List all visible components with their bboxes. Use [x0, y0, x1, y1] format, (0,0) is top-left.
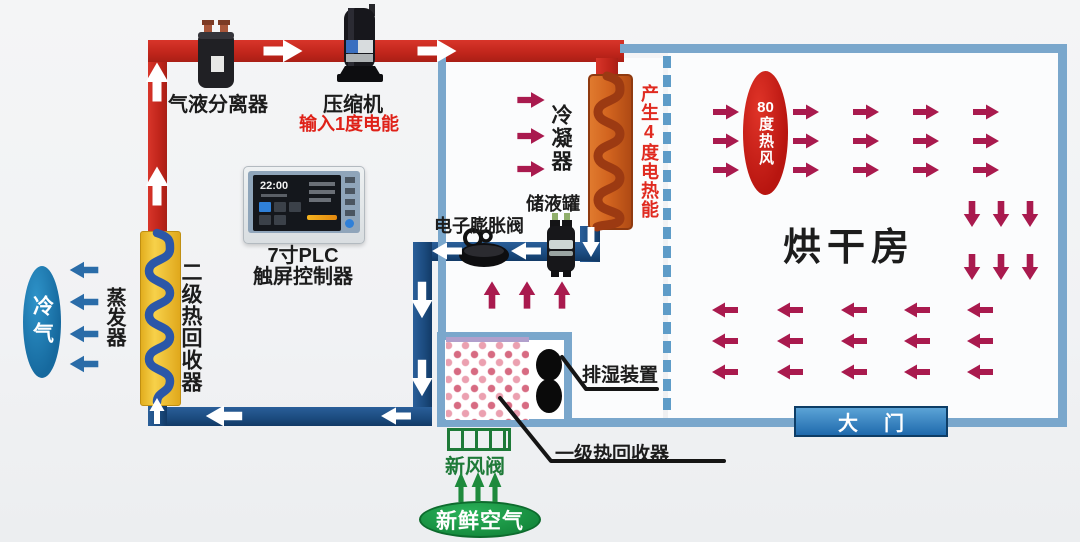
plc-side-icons — [345, 177, 355, 217]
plc-readout — [309, 182, 335, 186]
separator-label: 气液分离器 — [168, 88, 268, 117]
compressor-input-label: 输入1度电能 — [299, 110, 399, 136]
condenser-coil — [588, 74, 633, 230]
hot-air-bubble: 80 度热风 — [743, 71, 788, 195]
dehumidifier-unit — [534, 348, 564, 414]
condenser-label: 冷凝器 — [550, 104, 571, 173]
condenser-energy-label: 产生4度电热能 — [640, 84, 658, 219]
plc-clock-subtext — [261, 194, 287, 197]
primary-heat-recovery-panel — [446, 337, 529, 420]
fresh-air-label: 新鲜空气 — [436, 505, 524, 535]
receiver-label: 储液罐 — [526, 190, 580, 216]
plc-label-line1: 7寸PLC — [238, 246, 368, 267]
plc-clock: 22:00 — [260, 180, 288, 192]
hot-pipe-left-vertical — [148, 40, 167, 233]
plc-button — [274, 215, 286, 225]
plc-button — [259, 215, 271, 225]
door-label: 大门 — [812, 407, 930, 436]
cold-pipe-bottom-horizontal — [148, 407, 432, 426]
secondary-recovery-label: 二级热回收器 — [180, 261, 201, 393]
room-wall-right — [1058, 44, 1067, 427]
dehumidifier-label: 排湿装置 — [582, 360, 658, 387]
door-bar: 大门 — [794, 406, 948, 437]
plc-label-line2: 触屏控制器 — [238, 267, 368, 288]
drying-room-label: 烘干房 — [783, 216, 915, 271]
primary-recovery-label: 一级热回收器 — [555, 439, 669, 466]
plc-screen: 22:00 — [253, 175, 341, 231]
chamber-wall-left — [438, 53, 446, 340]
cold-air-label: 冷气 — [32, 295, 53, 349]
plc-power-button — [345, 219, 354, 228]
expansion-valve-label: 电子膨胀阀 — [434, 212, 524, 238]
room-divider-dashed — [663, 56, 671, 416]
cold-air-bubble: 冷气 — [23, 266, 61, 378]
fresh-air-valve-grille — [447, 428, 511, 451]
plc-readout — [309, 198, 331, 202]
plc-label: 7寸PLC 触屏控制器 — [238, 246, 368, 288]
gas-liquid-separator — [196, 20, 236, 90]
compressor — [337, 4, 383, 84]
evaporator-label: 蒸发器 — [104, 287, 124, 347]
fresh-air-bubble: 新鲜空气 — [419, 501, 541, 538]
plc-readout — [309, 190, 335, 194]
heat-pump-dryer-diagram: 22:00 — [0, 0, 1080, 542]
secondary-coil — [140, 231, 179, 404]
plc-controller: 22:00 — [243, 166, 365, 244]
plc-button — [274, 202, 286, 212]
room-wall-top — [620, 44, 1067, 53]
plc-progress-bar — [307, 215, 337, 220]
cold-pipe-left-vertical — [413, 242, 432, 426]
fresh-air-valve-label: 新风阀 — [445, 450, 505, 479]
hot-air-value: 80 — [757, 99, 774, 116]
receiver-tank — [544, 212, 578, 278]
plc-button — [289, 202, 301, 212]
plc-button — [259, 202, 271, 212]
hot-air-suffix: 度热风 — [758, 116, 773, 167]
